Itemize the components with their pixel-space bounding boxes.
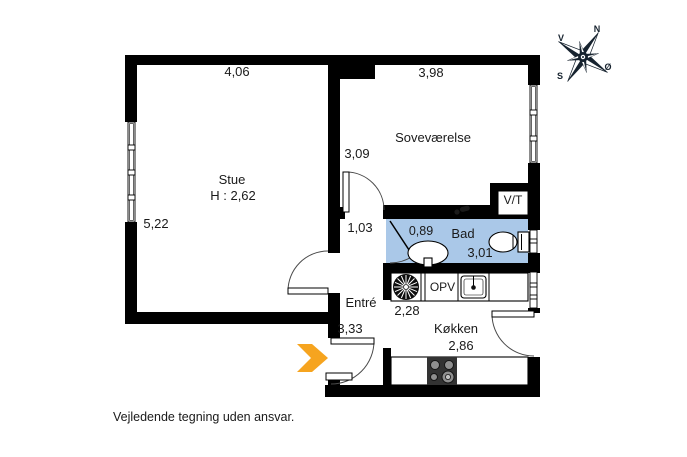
label-kokken-width: 2,86 <box>431 339 491 354</box>
compass-west-label: V <box>555 33 567 43</box>
label-hall-width: 1,03 <box>330 221 390 236</box>
label-opv: OPV <box>427 281 458 295</box>
label-vt-closet: V/T <box>498 194 528 208</box>
kitchen-sink-icon <box>461 276 486 298</box>
door-stue <box>288 251 328 294</box>
window-bad <box>530 230 537 253</box>
label-stue-depth: 5,22 <box>126 217 186 232</box>
label-bad: Bad <box>433 227 493 242</box>
label-stue: Stue <box>202 173 262 188</box>
door-entrance <box>326 338 374 384</box>
label-entre-length: 3,33 <box>320 322 380 337</box>
entrance-arrow-icon <box>297 344 328 372</box>
stove-icon <box>427 357 457 385</box>
compass-rose-icon <box>543 17 623 97</box>
window-sovevaerelse <box>530 85 537 163</box>
extractor-fan-icon <box>393 274 419 300</box>
label-sovevaerelse-width: 3,98 <box>401 66 461 81</box>
compass-north-label: N <box>591 24 603 34</box>
window-kokken <box>530 272 537 308</box>
disclaimer-text: Vejledende tegning uden ansvar. <box>113 410 294 424</box>
label-sovevaerelse-depth: 3,09 <box>327 147 387 162</box>
label-kokken: Køkken <box>416 322 496 337</box>
door-kokken <box>492 311 534 356</box>
kitchen-counter-bottom <box>391 357 528 385</box>
label-kokken-depth: 2,28 <box>377 304 437 319</box>
compass-south-label: S <box>554 71 566 81</box>
label-stue-ceiling-height: H : 2,62 <box>183 189 283 204</box>
window-stue <box>128 122 135 222</box>
label-stue-width: 4,06 <box>207 65 267 80</box>
floorplan-canvas: 4,06 3,98 Soveværelse 3,09 Stue H : 2,62… <box>0 0 687 457</box>
compass-east-label: Ø <box>602 62 614 72</box>
label-sovevaerelse: Soveværelse <box>373 131 493 146</box>
label-bad-length: 3,01 <box>450 246 510 261</box>
door-sovevaerelse <box>343 172 384 212</box>
